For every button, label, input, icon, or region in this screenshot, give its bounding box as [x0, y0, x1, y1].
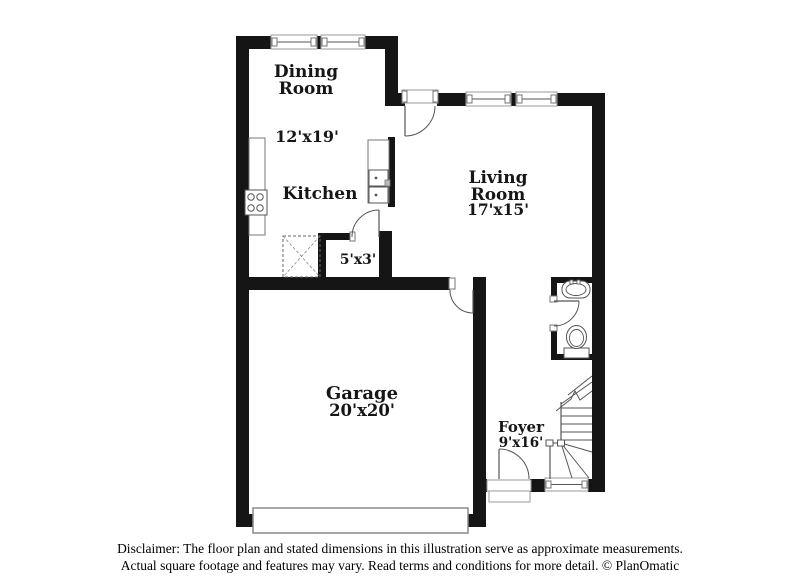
- garage-dimensions: 20'x20': [329, 401, 395, 420]
- kitchen-sink-icon: [369, 170, 390, 203]
- floor-plan-canvas: Dining Room 12'x19' Kitchen Living Room …: [0, 0, 800, 582]
- foyer-label: Foyer: [498, 418, 545, 436]
- floor-plan-drawing: Dining Room 12'x19' Kitchen Living Room …: [0, 0, 800, 582]
- closet-door: [350, 210, 379, 241]
- kitchen-label: Kitchen: [283, 184, 358, 204]
- front-door: [487, 449, 531, 502]
- bathroom-fixtures: [562, 280, 590, 358]
- kitchen-counter-left: [249, 138, 265, 235]
- disclaimer: Disclaimer: The floor plan and stated di…: [0, 540, 800, 574]
- doors: [253, 90, 579, 533]
- room-labels: Dining Room 12'x19' Kitchen Living Room …: [274, 62, 545, 451]
- stove-icon: [245, 190, 267, 215]
- garage-entry-door: [449, 278, 473, 313]
- foyer-window: [545, 478, 588, 491]
- dining-room-dimensions: 12'x19': [275, 127, 339, 146]
- back-door: [402, 90, 438, 136]
- dining-room-label-line2: Room: [279, 79, 334, 99]
- garage-door: [253, 508, 468, 533]
- living-window-right: [516, 92, 557, 106]
- optional-area-icon: [283, 236, 320, 277]
- toilet-icon: [564, 326, 589, 359]
- stairs: [546, 376, 592, 479]
- living-window-left: [466, 92, 511, 106]
- living-room-dimensions: 17'x15': [467, 200, 529, 219]
- disclaimer-line-1: Disclaimer: The floor plan and stated di…: [0, 540, 800, 557]
- dining-window-left: [271, 35, 317, 49]
- closet-dimensions: 5'x3': [340, 252, 376, 268]
- foyer-dimensions: 9'x16': [499, 435, 544, 451]
- disclaimer-line-2: Actual square footage and features may v…: [0, 557, 800, 574]
- dining-window-right: [321, 35, 365, 49]
- bathroom-sink-icon: [562, 280, 590, 298]
